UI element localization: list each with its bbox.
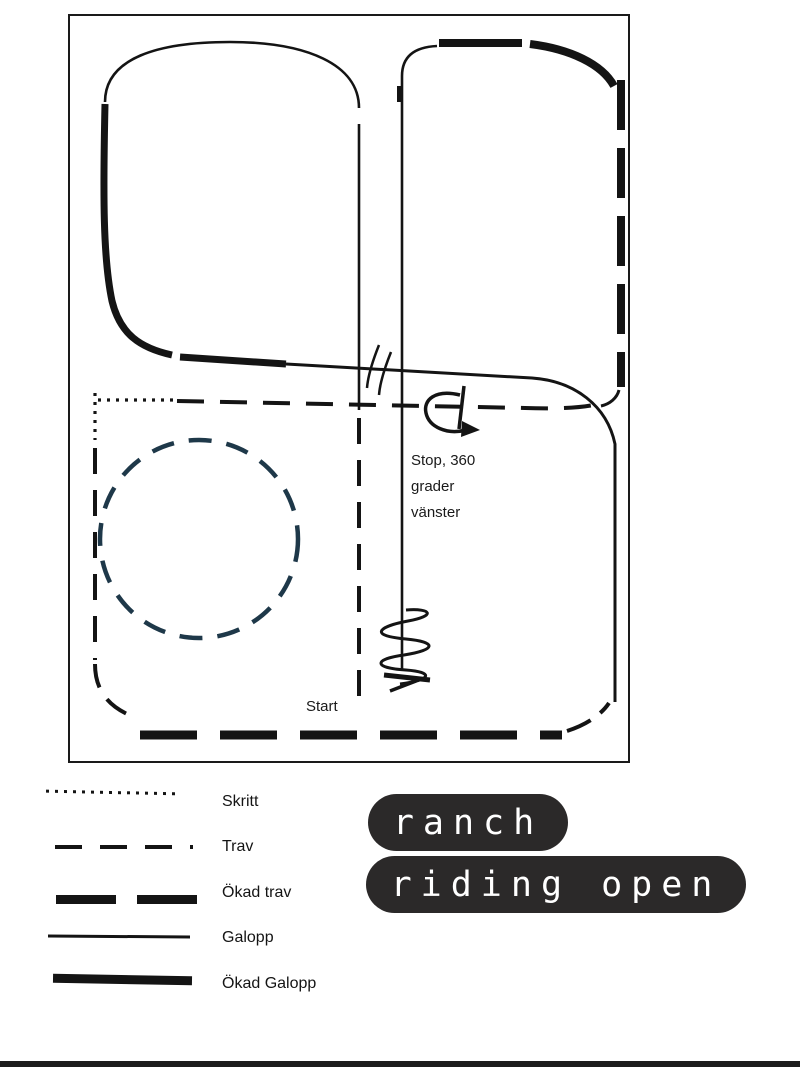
okad-trav-top-right-corner xyxy=(530,44,614,86)
legend-sample-galopp xyxy=(48,935,190,939)
stop-label-line3: vänster xyxy=(411,500,475,526)
course-diagram xyxy=(70,16,628,761)
slash-mark-2 xyxy=(379,352,391,395)
legend-label-skritt: Skritt xyxy=(222,793,258,811)
loop-bottom-okad-galopp-line xyxy=(180,357,286,364)
page: Stop, 360 grader vänster Start Skritt Tr… xyxy=(0,0,800,1067)
legend-sample-okad-trav xyxy=(56,895,197,904)
loop-arch-galopp-line xyxy=(105,42,359,108)
trav-horizontal-dashed-line xyxy=(177,401,598,408)
legend-sample-trav xyxy=(55,845,193,849)
center-right-galopp-line xyxy=(402,46,437,671)
legend-label-galopp: Galopp xyxy=(222,929,274,947)
turn-arrow-head xyxy=(461,421,480,437)
title-badge-ranch: ranch xyxy=(368,794,568,851)
backup-end-stroke xyxy=(384,675,430,680)
slash-mark-1 xyxy=(367,345,379,388)
trav-bottom-left-corner-dashed xyxy=(95,664,134,717)
bottom-right-corner-dashed xyxy=(567,703,609,731)
arena-box: Stop, 360 grader vänster Start xyxy=(68,14,630,763)
stop-360-label: Stop, 360 grader vänster xyxy=(411,448,475,526)
legend-label-okad-trav: Ökad trav xyxy=(222,884,291,902)
bottom-bar xyxy=(0,1061,800,1067)
start-label: Start xyxy=(306,698,338,715)
legend-label-okad-galopp: Ökad Galopp xyxy=(222,975,316,993)
stop-label-line2: grader xyxy=(411,474,475,500)
backup-zigzag xyxy=(381,610,429,684)
dashed-circle xyxy=(100,440,298,638)
loop-left-okad-galopp-line xyxy=(104,104,172,355)
legend-sample-okad-galopp xyxy=(53,974,192,985)
legend-sample-skritt xyxy=(46,790,180,797)
stop-label-line1: Stop, 360 xyxy=(411,448,475,474)
legend-label-trav: Trav xyxy=(222,838,253,856)
title-badge-riding-open: riding open xyxy=(366,856,746,913)
transition-curve xyxy=(601,390,619,406)
diagonal-and-right-wall-galopp-line xyxy=(286,364,615,702)
